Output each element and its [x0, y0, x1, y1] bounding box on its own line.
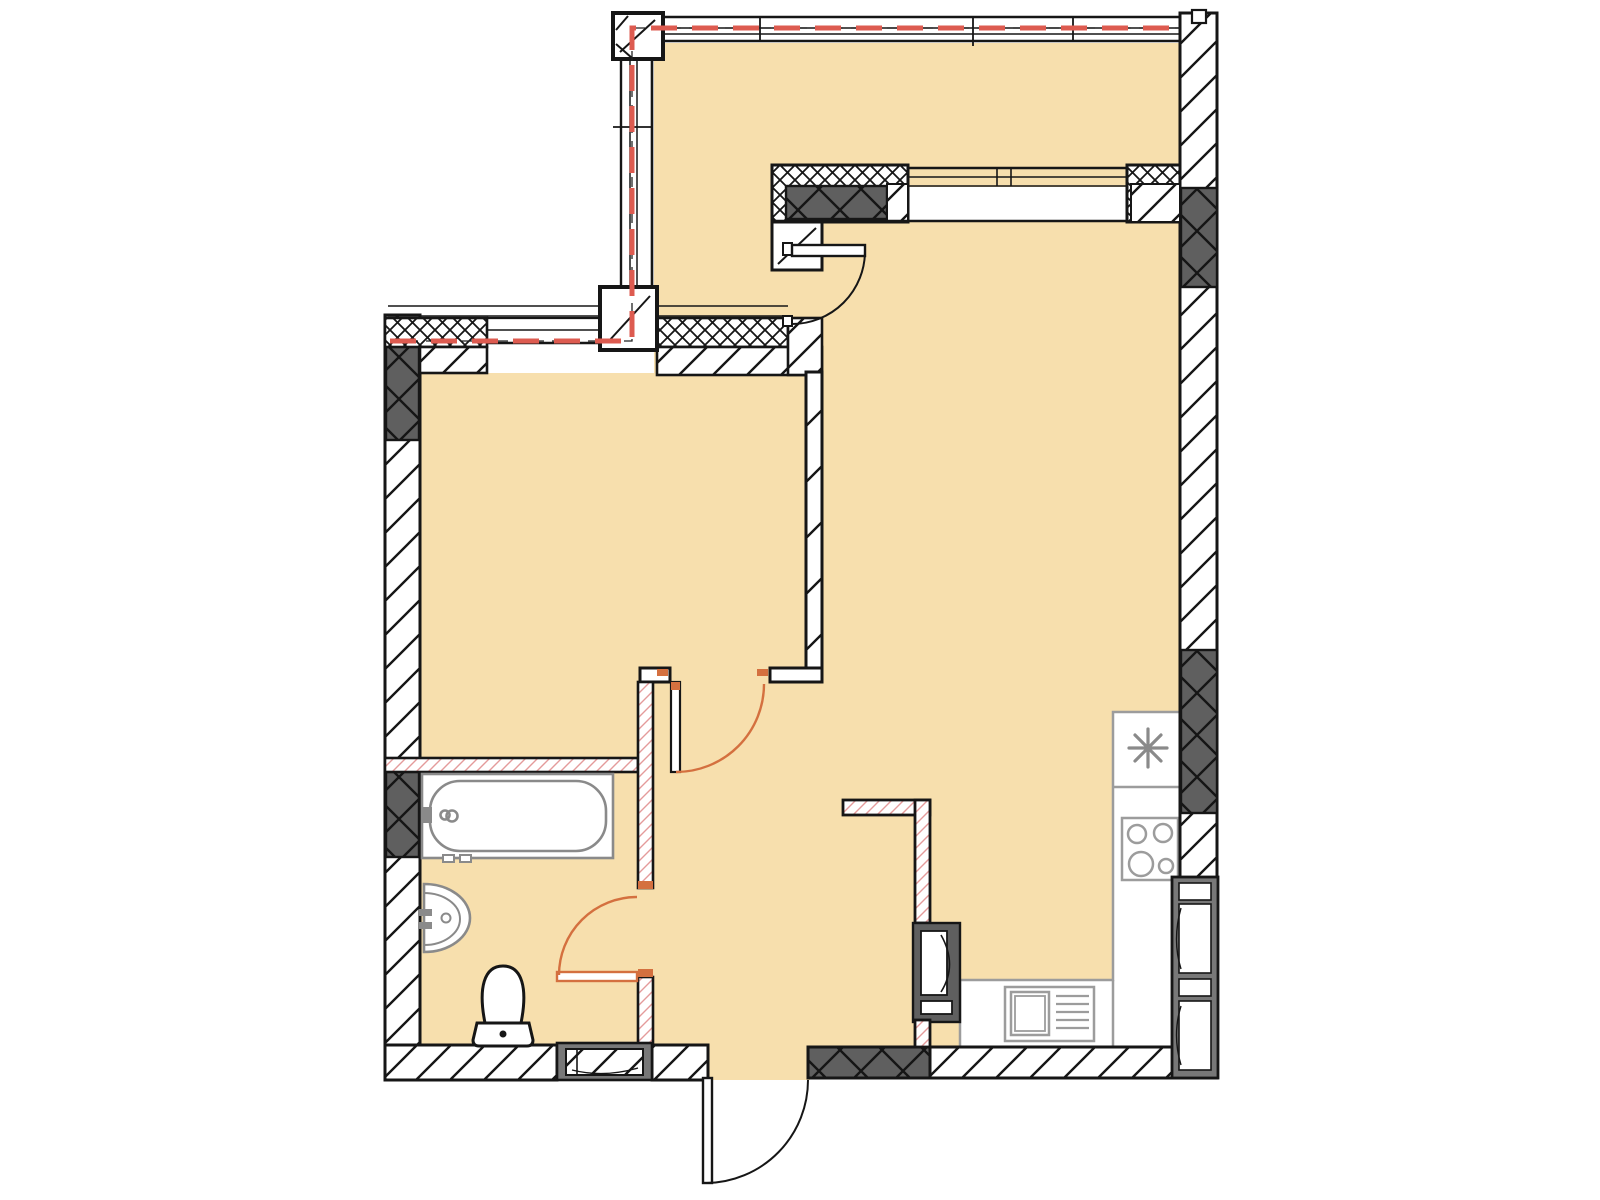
- bedroom-door-jamb-mark-left: [657, 669, 668, 676]
- wall-bottom-a: [385, 1045, 557, 1080]
- wall-bedroom-living: [806, 372, 822, 668]
- balcony-door-hinge: [783, 243, 792, 255]
- wall-stub-right: [770, 668, 822, 682]
- entrance-door-swing-arc: [707, 1080, 808, 1183]
- wall-hall-bath-lower: [638, 977, 653, 1045]
- bathroom-small-window: [557, 1043, 652, 1080]
- balcony-door-leaf: [792, 245, 865, 256]
- bedroom-door-hinge: [671, 682, 680, 690]
- loggia-pier-right-hatch: [1131, 184, 1180, 222]
- bathroom-door-jamb-mark-top: [638, 881, 653, 889]
- bathtub-icon: [422, 774, 613, 862]
- ventilation-shaft: [913, 923, 960, 1022]
- loggia-pier-left-end: [887, 184, 908, 221]
- wall-hall-bath-upper: [638, 682, 653, 888]
- toilet-button: [500, 1031, 507, 1038]
- refrigerator-asterisk-icon: [1129, 729, 1167, 767]
- right-window-pane-3: [1179, 979, 1211, 996]
- bedroom-door-jamb-mark-right: [757, 669, 768, 676]
- bathroom-door-jamb-mark-bottom: [638, 969, 653, 977]
- kitchen-sink-icon: [1005, 987, 1094, 1041]
- bathtub-foot-1: [443, 855, 454, 862]
- glazing-corner-post-top: [613, 13, 663, 59]
- washbasin-tap-1: [419, 909, 432, 916]
- bedroom-wall-pier-left-hatch: [420, 347, 487, 373]
- wall-right-dark-block-bottom: [1181, 650, 1217, 813]
- bedroom-wall-pier-right-lattice: [657, 318, 788, 347]
- floor-plan-drawing: [0, 0, 1600, 1200]
- loggia-dark-block: [786, 186, 887, 219]
- kitchen-wall-vertical-lower: [915, 1020, 930, 1047]
- bathtub-faucet: [423, 807, 432, 823]
- loggia-window-sill: [908, 187, 1127, 220]
- entrance-door-leaf: [703, 1078, 712, 1183]
- wall-right-dark-block-top: [1181, 188, 1217, 287]
- wall-left-dark-block-bottom: [386, 760, 419, 857]
- bedroom-window: [487, 318, 600, 343]
- bathroom-door-leaf: [557, 972, 637, 981]
- right-window-pane-4: [1179, 1001, 1211, 1070]
- bedroom-wall-corner-chunk: [788, 318, 822, 375]
- right-window-pane-1: [1179, 883, 1211, 900]
- bedroom-door-leaf: [671, 682, 680, 772]
- kitchen-wall-vertical-upper: [915, 800, 930, 923]
- bathtub-foot-2: [460, 855, 471, 862]
- right-window-pane-2: [1179, 904, 1211, 973]
- wall-bottom-dark-block: [808, 1047, 930, 1078]
- washbasin-tap-2: [419, 922, 432, 929]
- cooktop-icon: [1122, 818, 1178, 880]
- floor-plan-page: [0, 0, 1600, 1200]
- entrance-door: [703, 1078, 808, 1183]
- shaft-inner-panel-2: [921, 1001, 952, 1014]
- balcony-door-stop: [783, 316, 792, 326]
- wall-right-top-notch: [1192, 10, 1206, 23]
- right-wall-window-block: [1172, 877, 1218, 1078]
- wall-bottom-c: [930, 1047, 1182, 1078]
- wall-bathroom-top: [385, 758, 638, 772]
- wall-bottom-b: [652, 1045, 708, 1080]
